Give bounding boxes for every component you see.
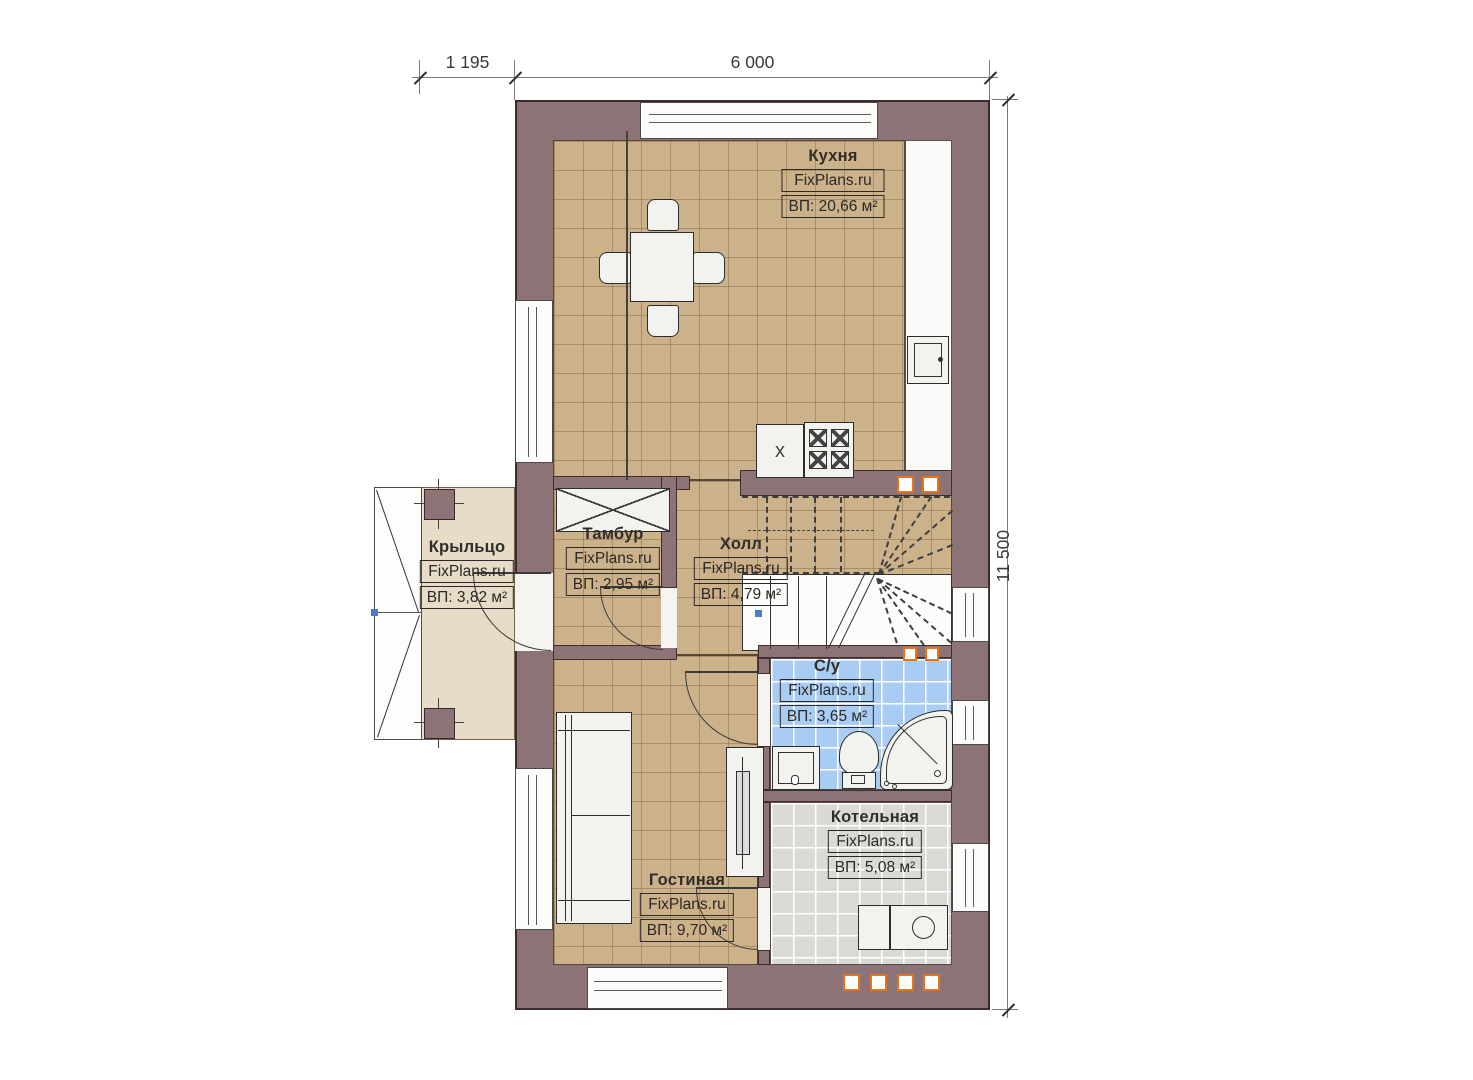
burner-icon [831,451,849,469]
area-box: ВП: 20,66 м² [781,195,884,218]
drain-icon [934,770,941,777]
watermark-box: FixPlans.ru [566,547,660,570]
stair-upper-tread [790,497,792,572]
door-opening-boiler [758,888,770,950]
watermark-box: FixPlans.ru [420,560,514,583]
room-label-tambour: Тамбур FixPlans.ru ВП: 2,95 м² [566,525,660,596]
porch-steps [374,487,422,740]
room-name-porch: Крыльцо [420,538,514,557]
faucet-icon [938,357,943,362]
kitchen-counter [905,140,952,480]
shower-valve-icon [892,784,897,789]
room-label-bathroom: С/у FixPlans.ru ВП: 3,65 м² [780,657,874,728]
extension-line [992,99,1018,100]
stair-lower-tread [798,576,799,649]
stair-upper-edge [742,496,950,498]
wall-boiler-west [758,950,770,965]
stair-lower-tread [826,576,827,649]
door-opening-tambour [661,588,677,648]
room-label-kitchen: Кухня FixPlans.ru ВП: 20,66 м² [781,147,884,218]
window-kitchen-north [640,102,878,139]
sofa [556,712,632,924]
wall-bathroom-boiler [758,790,952,802]
room-label-hall: Холл FixPlans.ru ВП: 4,79 м² [694,535,788,606]
porch-step-line [374,612,422,613]
glass-block [897,476,914,493]
door-opening-bathroom [758,674,770,746]
window-bathroom-east [952,700,989,745]
window-stair-east [952,587,989,642]
dimension-house-depth: 11 500 [993,496,1015,616]
sofa-armrest-line [558,730,630,731]
sofa-back-line [571,715,572,921]
room-label-living: Гостиная FixPlans.ru ВП: 9,70 м² [640,871,734,942]
room-label-boiler: Котельная FixPlans.ru ВП: 5,08 м² [828,808,922,879]
watermark-box: FixPlans.ru [694,557,788,580]
window-kitchen-west [515,300,553,463]
boiler-burner-icon [912,916,935,939]
glass-block [897,974,914,991]
boiler-divider [889,906,891,949]
kitchen-unit-x: x [756,424,804,478]
area-box: ВП: 5,08 м² [828,856,922,879]
shower-valve-icon [884,781,889,786]
area-box: ВП: 2,95 м² [566,573,660,596]
room-name-tambour: Тамбур [566,525,660,544]
sofa-back-line [565,715,566,921]
room-name-boiler: Котельная [828,808,922,827]
area-box: ВП: 4,79 м² [694,583,788,606]
porch-column [424,489,455,520]
section-line [626,131,628,480]
tv-mount-line [742,757,743,869]
glass-block [870,974,887,991]
burner-icon [809,429,827,447]
toilet-bowl [839,731,879,775]
dimension-house-width: 6 000 [515,52,990,73]
burner-icon [809,451,827,469]
glass-block [923,974,940,991]
window-living-south [587,967,728,1009]
marker-dot [755,610,762,617]
wall-bathroom-west [758,658,770,674]
door-leaf-bathroom [685,671,758,673]
porch-column [424,708,455,739]
room-name-kitchen: Кухня [781,147,884,166]
floor-plan-canvas: 1 195 6 000 11 500 [0,0,1473,1080]
area-box: ВП: 9,70 м² [640,919,734,942]
glass-block [925,647,939,661]
watermark-box: FixPlans.ru [781,169,884,192]
marker-dot [371,609,378,616]
dimension-porch-width: 1 195 [420,52,515,73]
dimension-line-top [412,77,998,78]
faucet-icon [791,775,799,785]
room-name-hall: Холл [694,535,788,554]
dining-chair [693,252,725,284]
toilet-button [851,775,865,784]
glass-block [922,476,939,493]
watermark-box: FixPlans.ru [828,830,922,853]
area-box: ВП: 3,65 м² [780,705,874,728]
sofa-cushion-line [572,815,630,816]
stair-upper-tread [814,497,816,572]
area-box: ВП: 3,82 м² [420,586,514,609]
stair-upper-tread [840,497,842,572]
window-living-west [515,768,553,930]
watermark-box: FixPlans.ru [640,893,734,916]
dining-table [630,232,694,302]
room-label-porch: Крыльцо FixPlans.ru ВП: 3,82 м² [420,538,514,609]
room-name-bathroom: С/у [780,657,874,676]
sofa-armrest-line [558,900,630,901]
glass-block [843,974,860,991]
glass-block [903,647,917,661]
room-name-living: Гостиная [640,871,734,890]
window-boiler-east [952,843,989,912]
watermark-box: FixPlans.ru [780,679,874,702]
dining-chair [647,305,679,337]
stair-guide-line [748,530,874,531]
burner-icon [831,429,849,447]
dining-chair [647,199,679,231]
extension-line [992,1009,1018,1010]
